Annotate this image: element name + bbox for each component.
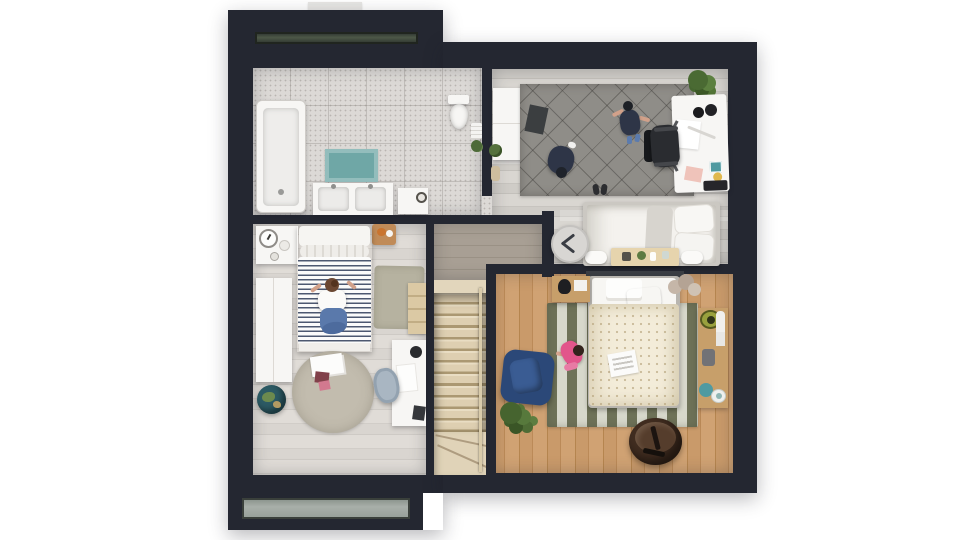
shoe-a: [592, 184, 600, 196]
wall-below-bathroom: [253, 215, 552, 224]
bathroom-door-opening: [482, 196, 492, 215]
floor-plan-render: [0, 0, 960, 540]
pampas-3: [688, 283, 701, 296]
green-bowl-center: [707, 316, 715, 324]
desk-lamp: [410, 346, 422, 358]
child-head: [573, 345, 584, 356]
wood-tray: [372, 224, 396, 245]
wall-clock: [551, 225, 589, 263]
dish: [279, 240, 290, 251]
bolster-right: [681, 251, 703, 264]
pampas-vase: [668, 274, 702, 302]
magazine-on-bed: [607, 350, 639, 378]
bathroom-plant: [471, 140, 482, 152]
sink-right: [355, 187, 386, 211]
vanity: [313, 183, 393, 215]
bench-glass: [662, 251, 669, 259]
shoes-pair: [593, 184, 611, 196]
tray-white-item: [386, 230, 393, 237]
bench-dark-item: [622, 252, 631, 261]
blue-armchair: [499, 348, 555, 406]
skylight-bottom: [242, 498, 410, 519]
black-vase: [558, 279, 571, 294]
clock-tick: [267, 234, 272, 240]
side-table: [698, 308, 728, 408]
white-bowl: [711, 389, 726, 403]
person-sitting-bun: [331, 280, 338, 287]
white-box: [574, 280, 587, 291]
nightstand-right: [552, 276, 590, 302]
person-kneeling: [546, 140, 580, 182]
shelf-rung3: [408, 321, 426, 323]
magazine-lines: [612, 355, 634, 370]
bed-left-pillow: [299, 226, 370, 246]
shoe-b: [600, 184, 607, 196]
child-playing: [556, 336, 588, 376]
wall-bedL-stairs: [426, 215, 434, 475]
teal-box: [710, 161, 722, 172]
laundry-basket: [416, 192, 427, 203]
office-small-plant: [489, 144, 502, 157]
pink-notepad: [684, 166, 703, 183]
globe: [257, 385, 286, 414]
bolster-left: [585, 251, 607, 264]
tray-orange-item: [377, 228, 386, 236]
person-standing-shoe1: [627, 136, 632, 144]
faucet-right: [368, 184, 373, 189]
office-bottles: [491, 166, 500, 181]
dish-small: [270, 252, 279, 261]
leather-pouf: [629, 418, 682, 465]
clock-hand-2: [561, 241, 575, 253]
towel-stack: [471, 123, 482, 139]
remote: [702, 349, 715, 366]
foot-bench: [611, 248, 679, 266]
person-sitting-arm-right: [346, 280, 357, 290]
headphone-cup1: [693, 107, 704, 118]
sink-left: [318, 187, 349, 211]
bench-candle: [650, 252, 656, 261]
nightstand-left: [256, 226, 298, 264]
stair-railing: [479, 288, 482, 472]
shelf-rung2: [408, 308, 426, 310]
armchair-cushion: [508, 357, 543, 396]
office-chair: [642, 118, 682, 174]
wardrobe-split: [273, 278, 274, 382]
ladder-shelf: [408, 283, 426, 334]
faucet-left: [331, 184, 336, 189]
person-standing-body: [618, 109, 641, 137]
bathtub-drain: [278, 189, 284, 195]
pink-item: [318, 380, 330, 391]
desk-dark-item: [412, 405, 426, 421]
bench-plant: [637, 251, 646, 260]
bed-right: [588, 276, 680, 408]
globe-land: [262, 392, 275, 402]
book-item: [716, 332, 725, 346]
person-sitting: [308, 278, 358, 340]
person-standing-shoe2: [634, 134, 641, 143]
bathtub: [256, 100, 306, 213]
bed-left-foot: [299, 343, 370, 351]
office-large-plant: [688, 70, 708, 90]
bedroom-right-plant: [500, 402, 522, 424]
person-standing-head: [623, 101, 633, 111]
shelf-rung1: [408, 295, 426, 297]
footprint-notch: [423, 493, 443, 530]
laptop: [703, 180, 727, 191]
wardrobe: [256, 278, 292, 382]
white-bowl-center: [716, 393, 722, 399]
alarm-clock: [259, 229, 278, 248]
headphone-cup2: [705, 104, 717, 116]
guest-pillow-1: [673, 204, 715, 235]
headphones: [692, 101, 720, 121]
person-kneeling-head: [556, 167, 567, 178]
bath-mat: [325, 149, 378, 182]
toilet: [448, 95, 469, 104]
globe-land2: [273, 401, 281, 408]
wall-stairs-bedR: [486, 264, 496, 475]
skylight-top: [255, 32, 418, 44]
